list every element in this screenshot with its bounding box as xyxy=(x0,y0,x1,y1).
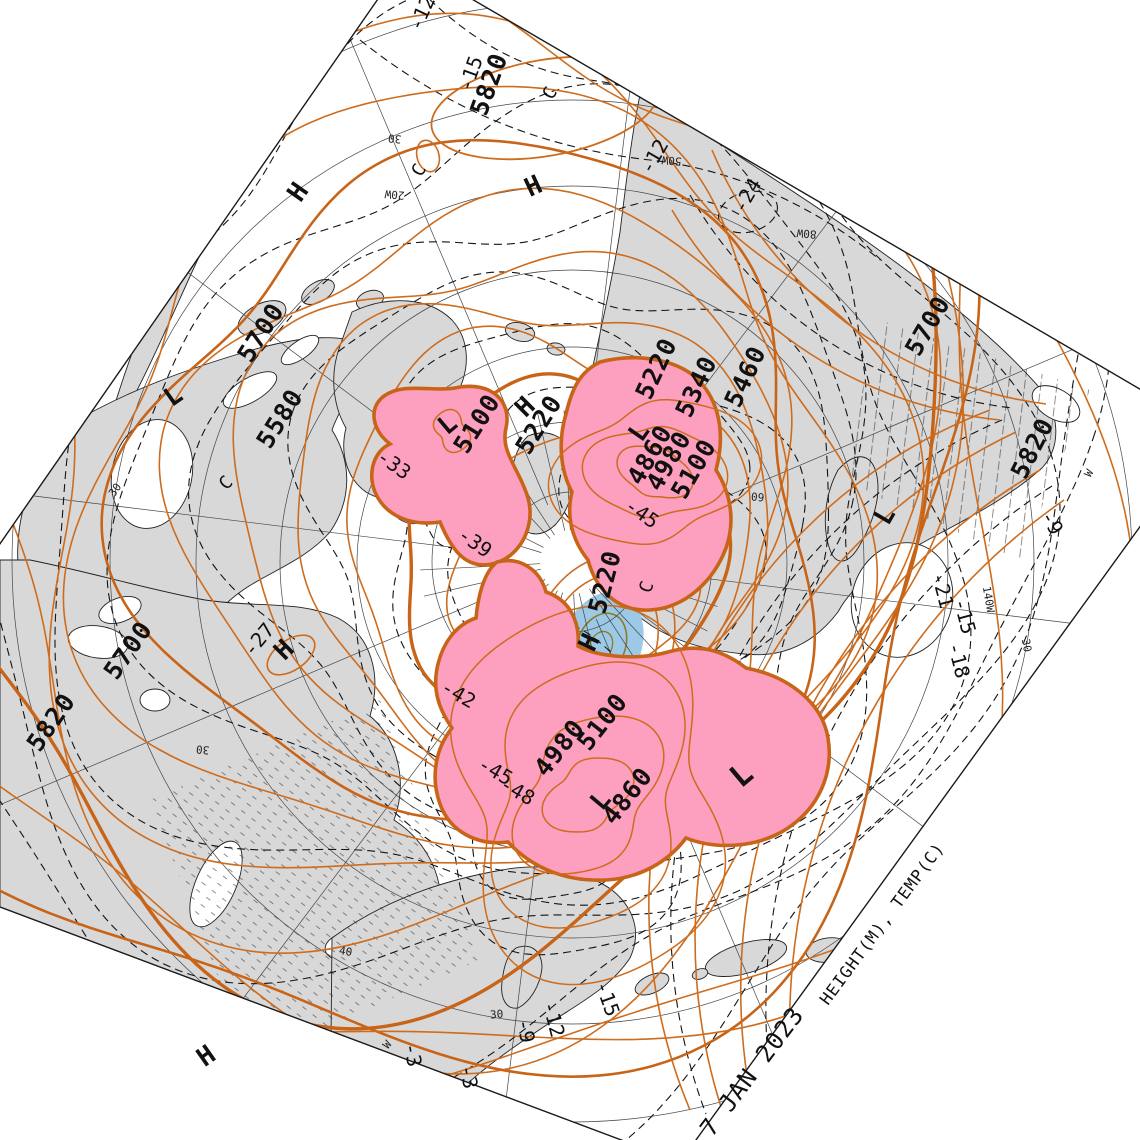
temp-contour-label: -9 xyxy=(512,1017,540,1045)
height-oval-ne xyxy=(974,70,1035,122)
graticule-label: 40 xyxy=(338,944,353,959)
graticule-label: 30 xyxy=(490,1007,504,1021)
sea-mediterranean xyxy=(0,1051,182,1140)
graticule-label: 60 xyxy=(751,489,765,503)
weather-map: 5820570055805700582051005220522052205340… xyxy=(0,0,1140,1140)
graticule-label: 30 xyxy=(1019,638,1034,653)
temp-contour-label: -3 xyxy=(399,1041,427,1069)
graticule-label: 80W xyxy=(796,226,817,241)
temp-contour-label: -3 xyxy=(455,1063,483,1091)
pressure-center-marker: H xyxy=(191,1040,221,1074)
graticule-label: 30 xyxy=(388,131,402,145)
lake-white-2 xyxy=(140,689,170,711)
weather-map-page: 5820570055805700582051005220522052205340… xyxy=(0,0,1140,1140)
graticule-label: 50W xyxy=(661,153,682,168)
map-clipped-content xyxy=(0,0,1140,1140)
graticule-label: 30 xyxy=(196,742,210,756)
graticule-label: 20W xyxy=(384,187,405,202)
